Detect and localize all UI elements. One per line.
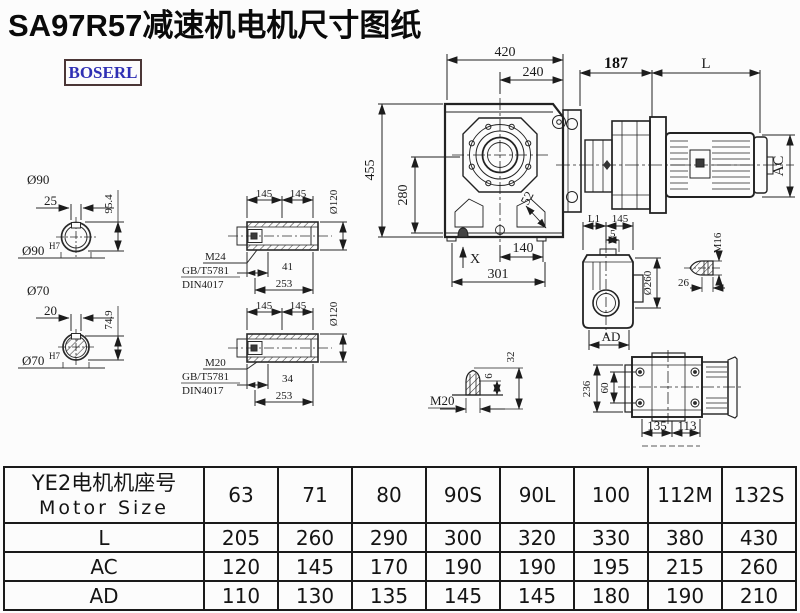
motor-size-header-cell: YE2电机机座号 Motor Size: [4, 467, 204, 523]
table-row-ac: AC 120 145 170 190 190 195 215 260: [4, 552, 796, 581]
table-cell: 190: [648, 581, 722, 610]
view-motor: [556, 70, 795, 213]
dim-sleeve-bot-dia: Ø120: [328, 301, 340, 326]
table-header-row: YE2电机机座号 Motor Size 63 71 80 90S 90L 100…: [4, 467, 796, 523]
dim-front-x: X: [470, 252, 480, 267]
dim-sleeve-bot-depth: 34: [282, 373, 294, 385]
dim-sleeve-top-length: 253: [276, 278, 293, 290]
table-cell: 260: [722, 552, 796, 581]
dim-sleeve-top-thread: M24: [205, 251, 226, 263]
table-cell: 170: [352, 552, 426, 581]
dim-bore90-height: 95.4: [103, 194, 115, 214]
dim-bore90-label: Ø90: [27, 172, 49, 187]
dim-front-301: 301: [488, 267, 509, 282]
table-cell: 300: [426, 523, 500, 552]
dim-sleeve-top-std1: GB/T5781: [182, 265, 229, 277]
table-row-l: L 205 260 290 300 320 330 380 430: [4, 523, 796, 552]
dim-sleeve-top-dia: Ø120: [328, 189, 340, 214]
dim-sleeve-bot-length: 253: [276, 390, 293, 402]
table-cell: 205: [204, 523, 278, 552]
dim-side-ad: AD: [602, 329, 621, 344]
view-top: [593, 350, 742, 446]
dim-side-dia260: Ø260: [642, 270, 654, 295]
dim-bore70-fit-sup: H7: [49, 351, 60, 361]
table-cell: 130: [278, 581, 352, 610]
dim-motor-187: 187: [604, 55, 628, 72]
dim-bore90-fit-sup: H7: [49, 241, 60, 251]
size-header-cell: 71: [278, 467, 352, 523]
dim-sleeve-bot-145b: 145: [290, 300, 307, 312]
size-header-cell: 100: [574, 467, 648, 523]
dim-side-145: 145: [612, 213, 629, 225]
table-cell: 135: [352, 581, 426, 610]
dim-front-420: 420: [495, 45, 516, 60]
size-header-cell: 112M: [648, 467, 722, 523]
table-cell: 145: [500, 581, 574, 610]
table-row-ad: AD 110 130 135 145 145 180 190 210: [4, 581, 796, 610]
dim-front-240: 240: [523, 65, 544, 80]
dim-top-113: 113: [677, 418, 696, 433]
dim-sleeve-bot-std1: GB/T5781: [182, 371, 229, 383]
dim-motor-l: L: [701, 56, 710, 72]
dim-front-140: 140: [513, 241, 534, 256]
dim-sleeve-top-145a: 145: [256, 188, 273, 200]
dim-side-l1: L1: [588, 213, 600, 225]
dim-bore70-key: 20: [44, 303, 57, 318]
dim-top-135: 135: [647, 418, 667, 433]
dim-sleeve-top-depth: 41: [282, 261, 293, 273]
size-header-cell: 63: [204, 467, 278, 523]
size-header-cell: 90L: [500, 467, 574, 523]
size-header-cell: 80: [352, 467, 426, 523]
table-cell: 180: [574, 581, 648, 610]
motor-size-table: YE2电机机座号 Motor Size 63 71 80 90S 90L 100…: [3, 466, 797, 611]
dim-bore70-fit: Ø70: [22, 353, 44, 368]
dim-motor-ac: AC: [771, 156, 787, 177]
row-label-cell: L: [4, 523, 204, 552]
row-label-cell: AD: [4, 581, 204, 610]
header-label-cn: YE2电机机座号: [5, 470, 203, 496]
dim-sleeve-bot-145a: 145: [256, 300, 273, 312]
table-cell: 145: [426, 581, 500, 610]
table-cell: 210: [722, 581, 796, 610]
dim-bore90-fit: Ø90: [22, 243, 44, 258]
table-cell: 320: [500, 523, 574, 552]
table-cell: 145: [278, 552, 352, 581]
table-cell: 260: [278, 523, 352, 552]
dim-top-60: 60: [599, 382, 611, 394]
table-cell: 290: [352, 523, 426, 552]
table-cell: 430: [722, 523, 796, 552]
dim-front-455: 455: [363, 160, 378, 181]
dim-top-236: 236: [581, 380, 593, 397]
table-cell: 110: [204, 581, 278, 610]
dim-bore70-height: 74.9: [103, 310, 115, 330]
table-cell: 190: [500, 552, 574, 581]
dim-sleeve-top-145b: 145: [290, 188, 307, 200]
dim-bore70-label: Ø70: [27, 283, 49, 298]
row-label-cell: AC: [4, 552, 204, 581]
dim-bore90-key: 25: [44, 193, 57, 208]
table-cell: 195: [574, 552, 648, 581]
dim-plug-32: 32: [505, 352, 517, 363]
table-cell: 120: [204, 552, 278, 581]
table-cell: 215: [648, 552, 722, 581]
dim-sleeve-bot-std2: DIN4017: [182, 385, 224, 397]
dim-side-5: 5: [610, 228, 616, 240]
dim-side-m16: M16: [712, 232, 724, 253]
dim-plug-6: 6: [483, 373, 495, 379]
size-header-cell: 132S: [722, 467, 796, 523]
header-label-en: Motor Size: [5, 496, 203, 520]
table-cell: 330: [574, 523, 648, 552]
dim-sleeve-bot-thread: M20: [205, 357, 226, 369]
dim-sleeve-top-std2: DIN4017: [182, 279, 224, 291]
dimension-drawing: Ø90 25 95.4 Ø90 H7 Ø70 20 74.9 Ø70 H7: [0, 0, 800, 466]
size-header-cell: 90S: [426, 467, 500, 523]
table-cell: 190: [426, 552, 500, 581]
table-cell: 380: [648, 523, 722, 552]
dim-front-280: 280: [396, 185, 411, 206]
dim-side-26: 26: [678, 277, 690, 289]
dim-plug-m20: M20: [430, 393, 455, 408]
